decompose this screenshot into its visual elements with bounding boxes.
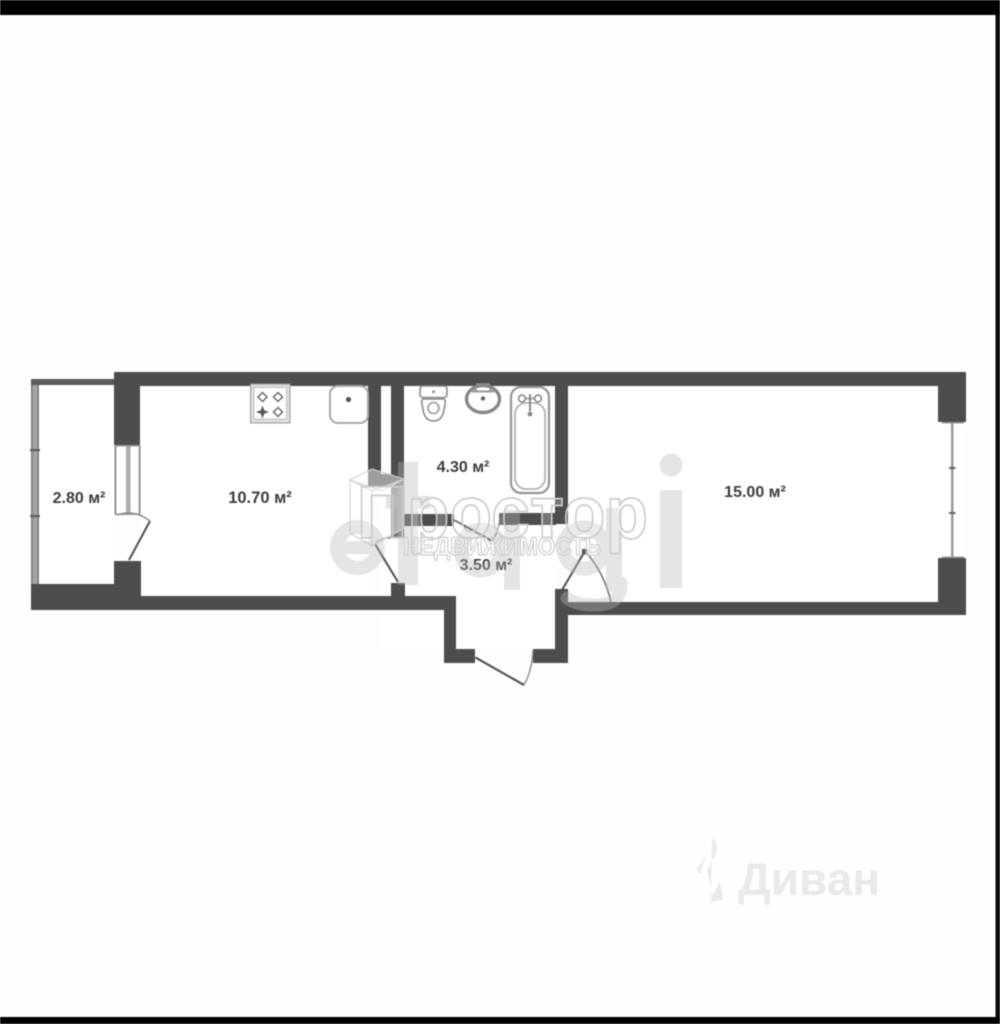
svg-text:НЕДВИЖИМОСТЬ: НЕДВИЖИМОСТЬ [403, 533, 601, 561]
svg-text:Диван: Диван [738, 853, 880, 905]
svg-text:2.80 м²: 2.80 м² [53, 490, 106, 507]
svg-text:15.00 м²: 15.00 м² [724, 484, 786, 501]
svg-text:10.70 м²: 10.70 м² [228, 489, 292, 507]
